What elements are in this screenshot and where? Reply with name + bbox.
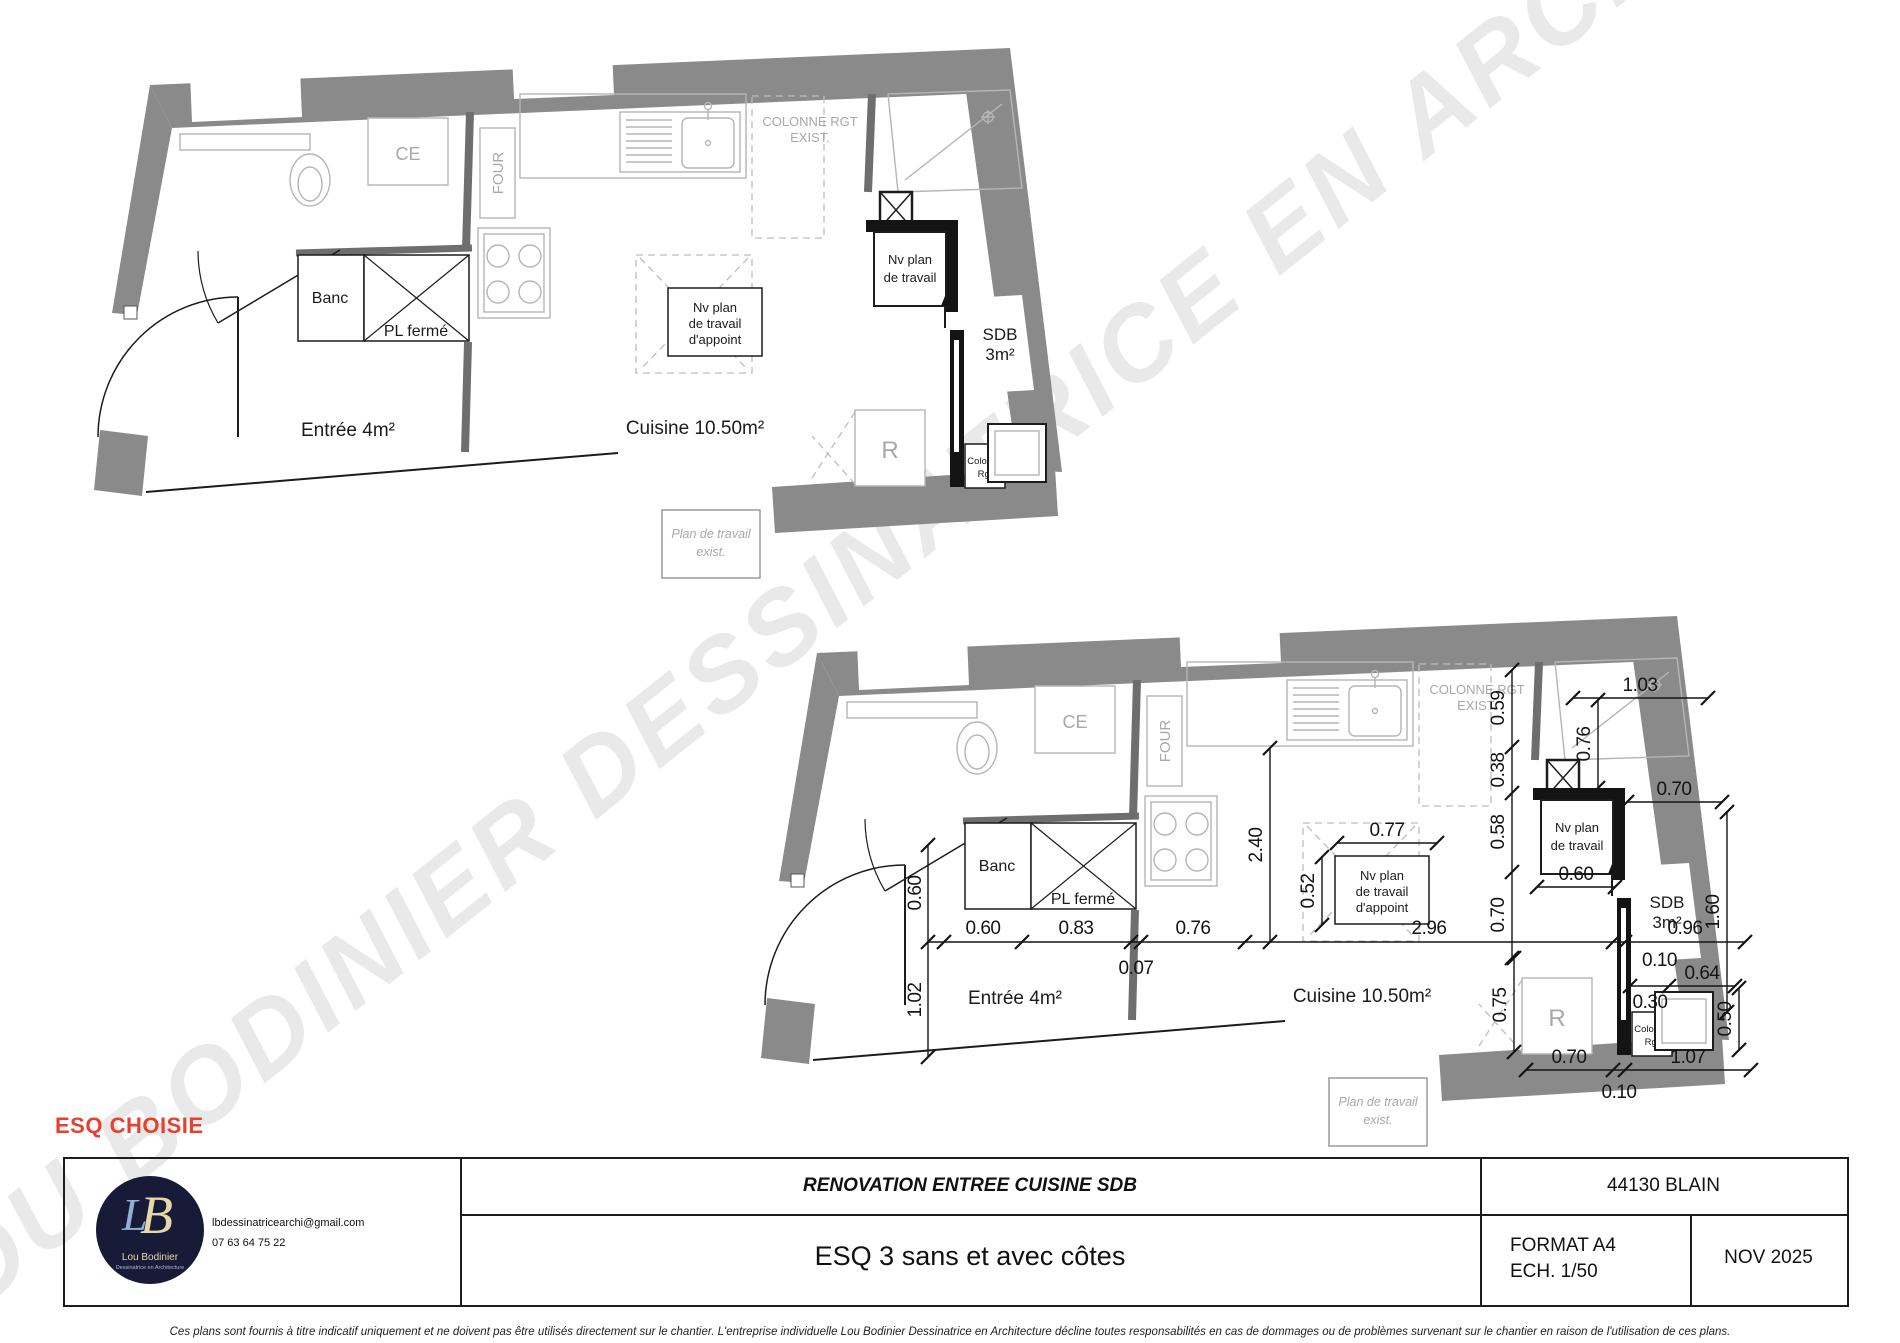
fridge-dash-2 bbox=[812, 436, 855, 484]
plan-exist-box bbox=[662, 510, 760, 578]
logo: L B Lou Bodinier Dessinatrice en Archite… bbox=[96, 1176, 204, 1284]
sink-drain bbox=[706, 141, 711, 146]
banc-label: Banc bbox=[312, 290, 348, 307]
dim-076-shower-text: 0.76 bbox=[1574, 727, 1595, 762]
bench-closet: Banc PL fermé bbox=[298, 255, 469, 341]
burner-2 bbox=[519, 245, 541, 267]
dim-058: 0.58 bbox=[1488, 815, 1509, 850]
wall-left bbox=[112, 85, 172, 315]
wall-right bbox=[966, 48, 1062, 472]
date: NOV 2025 bbox=[1690, 1247, 1847, 1269]
footer-disclaimer: Ces plans sont fournis à titre indicatif… bbox=[0, 1326, 1900, 1338]
dim-077: 0.77 bbox=[1330, 820, 1444, 850]
colonne-exist-label-2: EXIST. bbox=[790, 130, 830, 145]
kitchen-fixtures: FOUR COLONNE RGT EXIST. bbox=[478, 94, 858, 373]
nv-plan-label-1: Nv plan bbox=[888, 252, 932, 267]
plan-exist-label-1: Plan de travail bbox=[671, 527, 751, 541]
sdb-label-2: 3m² bbox=[985, 345, 1015, 364]
wc-door-arc bbox=[198, 251, 218, 323]
dim-038: 0.38 bbox=[1488, 753, 1509, 788]
dim-160-text: 1.60 bbox=[1703, 895, 1724, 930]
floor-plan-svg: CE Banc PL fermé FOUR bbox=[0, 0, 1900, 1343]
dim-107-text: 1.07 bbox=[1671, 1047, 1706, 1068]
window-gap-1 bbox=[190, 69, 302, 122]
partition-sdb bbox=[868, 94, 872, 192]
dim-chain-left: 0.60 1.02 bbox=[905, 838, 935, 1064]
city: 44130 BLAIN bbox=[1480, 1175, 1847, 1197]
appoint-label-3: d'appoint bbox=[689, 332, 742, 347]
dim-096: 0.96 bbox=[1668, 918, 1703, 939]
burner-3 bbox=[487, 281, 509, 303]
threshold-line bbox=[146, 453, 618, 492]
dim-077-text: 0.77 bbox=[1370, 820, 1405, 841]
ce-label: CE bbox=[395, 144, 420, 164]
dim-064-text: 0.64 bbox=[1685, 963, 1721, 984]
partition-entree-kitchen bbox=[466, 112, 470, 250]
dim-052-text: 0.52 bbox=[1298, 874, 1319, 909]
dim-102: 1.02 bbox=[905, 983, 926, 1018]
dim-240-text: 2.40 bbox=[1246, 828, 1267, 863]
sink-drainboard bbox=[626, 120, 672, 162]
dim-103-text: 1.03 bbox=[1623, 675, 1658, 696]
existing-worktop: Plan de travail exist. bbox=[662, 510, 760, 578]
dim-010-pipe: 0.10 bbox=[1642, 950, 1677, 971]
dim-083: 0.83 bbox=[1059, 918, 1094, 939]
entree-label: Entrée 4m² bbox=[301, 420, 395, 441]
fridge-label: R bbox=[881, 437, 898, 464]
logo-subtitle: Dessinatrice en Architecture bbox=[96, 1265, 204, 1271]
cuisine-label: Cuisine 10.50m² bbox=[626, 418, 764, 439]
door-jamb bbox=[124, 306, 137, 319]
sdb-label-1: SDB bbox=[983, 325, 1018, 344]
scale: ECH. 1/50 bbox=[1510, 1259, 1598, 1285]
plan-exist-label-2: exist. bbox=[696, 545, 725, 559]
dim-052: 0.52 bbox=[1298, 850, 1329, 932]
dim-060-entree: 0.60 bbox=[966, 918, 1001, 939]
dim-075-text: 0.75 bbox=[1490, 988, 1511, 1023]
logo-monogram-b: B bbox=[140, 1184, 173, 1246]
contact-email: lbdessinatricearchi@gmail.com bbox=[212, 1213, 364, 1233]
project-title: RENOVATION ENTREE CUISINE SDB bbox=[460, 1175, 1480, 1197]
divider-rows bbox=[460, 1214, 1847, 1216]
dim-070-bottom-text: 0.70 bbox=[1552, 1047, 1587, 1068]
dim-050-text: 0.50 bbox=[1715, 1002, 1736, 1037]
dim-070-left: 0.70 bbox=[1488, 898, 1509, 933]
contact-phone: 07 63 64 75 22 bbox=[212, 1233, 364, 1253]
dim-059: 0.59 bbox=[1488, 691, 1509, 726]
colonne-exist-label-1: COLONNE RGT bbox=[762, 114, 857, 129]
pipe-slot bbox=[954, 340, 959, 452]
dim-030-text: 0.30 bbox=[1633, 992, 1668, 1013]
status-label: ESQ CHOISIE bbox=[55, 1113, 204, 1139]
contact-info: lbdessinatricearchi@gmail.com 07 63 64 7… bbox=[212, 1213, 364, 1253]
dim-010-bottom-text: 0.10 bbox=[1602, 1082, 1637, 1103]
dim-296: 2.96 bbox=[1412, 918, 1447, 939]
fridge-dash-1 bbox=[812, 412, 855, 478]
format: FORMAT A4 bbox=[1510, 1233, 1616, 1259]
dim-240: 2.40 bbox=[1246, 741, 1277, 949]
dim-060-banc: 0.60 bbox=[905, 876, 926, 911]
partition-wc bbox=[296, 248, 472, 253]
logo-name: Lou Bodinier bbox=[96, 1252, 204, 1263]
burner-1 bbox=[487, 245, 509, 267]
four-label: FOUR bbox=[490, 152, 507, 195]
dim-chain-right: 0.59 0.38 0.58 0.70 bbox=[1488, 663, 1519, 965]
washing-machine bbox=[988, 424, 1046, 482]
stove bbox=[478, 228, 550, 318]
partition-kitchen-lower bbox=[465, 342, 468, 452]
floor-plan: CE Banc PL fermé FOUR bbox=[94, 48, 1062, 578]
wc-fixtures: CE bbox=[180, 118, 448, 206]
nv-plan-label-2: de travail bbox=[884, 270, 937, 285]
entry-door-arc bbox=[98, 297, 238, 437]
dim-076-stove: 0.76 bbox=[1176, 918, 1211, 939]
dim-007: 0.07 bbox=[1119, 958, 1154, 979]
dim-060-nvplan-text: 0.60 bbox=[1559, 864, 1594, 885]
sink-basin bbox=[682, 118, 734, 168]
appoint-label-1: Nv plan bbox=[693, 300, 737, 315]
pl-ferme-label: PL fermé bbox=[384, 323, 448, 340]
shelf bbox=[180, 134, 310, 150]
dim-070-sdb-text: 0.70 bbox=[1657, 779, 1692, 800]
sink-unit bbox=[620, 112, 740, 172]
drawing-title: ESQ 3 sans et avec côtes bbox=[460, 1241, 1480, 1272]
wall-stub bbox=[94, 430, 148, 496]
toilet bbox=[290, 154, 330, 206]
dim-075: 0.75 bbox=[1490, 951, 1521, 1059]
toilet-bowl bbox=[298, 167, 322, 201]
page: LOU BODINIER DESSINATRICE EN ARCHITECTUR… bbox=[0, 0, 1900, 1343]
burner-4 bbox=[519, 281, 541, 303]
appoint-label-2: de travail bbox=[689, 316, 742, 331]
window-gap-2 bbox=[512, 51, 614, 99]
nv-plan-box bbox=[874, 232, 946, 306]
